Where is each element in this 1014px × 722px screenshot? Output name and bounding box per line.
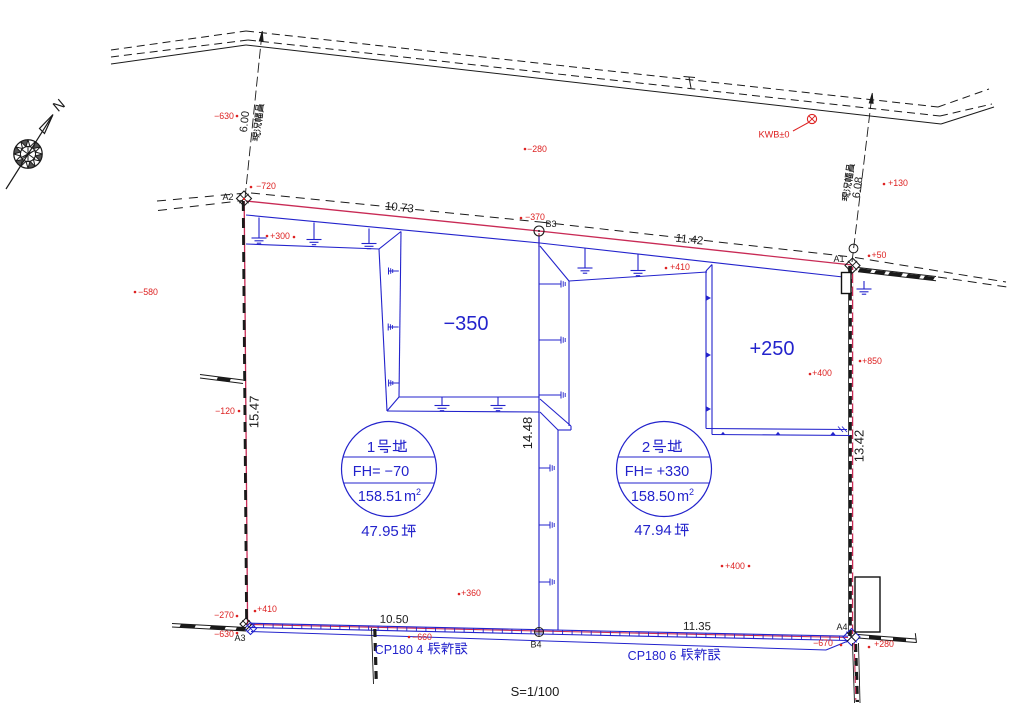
svg-text:2: 2	[642, 439, 650, 456]
svg-text:15.47: 15.47	[246, 396, 262, 429]
svg-text:6.00: 6.00	[238, 110, 252, 133]
svg-text:+50: +50	[872, 250, 887, 260]
svg-text:+850: +850	[862, 356, 882, 366]
svg-text:FH= +330: FH= +330	[625, 464, 690, 480]
svg-text:A4: A4	[836, 622, 847, 632]
svg-text:47.94: 47.94	[634, 522, 672, 539]
svg-text:+300: +300	[270, 231, 290, 241]
svg-text:+400: +400	[725, 561, 745, 571]
svg-text:+360: +360	[461, 588, 481, 598]
svg-text:13.42: 13.42	[852, 430, 867, 463]
svg-text:S=1/100: S=1/100	[511, 684, 560, 699]
svg-text:−120: −120	[215, 406, 235, 416]
svg-text:14.48: 14.48	[520, 417, 535, 450]
svg-text:KWB±0: KWB±0	[758, 130, 789, 140]
svg-text:+130: +130	[888, 178, 908, 188]
svg-text:+280: +280	[874, 639, 894, 649]
svg-text:−660: −660	[412, 632, 432, 642]
svg-text:CP180 6: CP180 6	[628, 649, 677, 663]
svg-text:158.50: 158.50	[631, 489, 675, 505]
svg-text:−370: −370	[525, 212, 545, 222]
svg-text:CP180 4: CP180 4	[375, 643, 424, 657]
svg-text:B4: B4	[530, 640, 541, 650]
svg-text:B3: B3	[545, 219, 556, 229]
svg-text:−270: −270	[214, 610, 234, 620]
svg-text:+410: +410	[257, 604, 277, 614]
svg-text:+400: +400	[812, 368, 832, 378]
svg-text:A2: A2	[222, 192, 233, 202]
svg-text:−280: −280	[527, 144, 547, 154]
svg-text:1: 1	[367, 439, 375, 456]
svg-text:+410: +410	[670, 262, 690, 272]
svg-text:2: 2	[416, 487, 421, 497]
svg-text:11.35: 11.35	[683, 621, 711, 633]
svg-text:−350: −350	[443, 313, 488, 335]
svg-text:m: m	[677, 489, 689, 505]
svg-text:A1: A1	[833, 254, 844, 264]
svg-text:FH= −70: FH= −70	[353, 464, 409, 480]
svg-text:2: 2	[689, 487, 694, 497]
svg-text:−630: −630	[214, 111, 234, 121]
svg-text:+250: +250	[749, 338, 794, 360]
svg-text:A3: A3	[234, 633, 245, 643]
svg-text:158.51: 158.51	[358, 489, 402, 505]
svg-text:m: m	[404, 489, 416, 505]
svg-text:10.50: 10.50	[380, 614, 409, 627]
svg-text:−630: −630	[214, 629, 234, 639]
svg-text:−670: −670	[813, 638, 833, 648]
svg-text:47.95: 47.95	[361, 523, 399, 540]
svg-text:−580: −580	[138, 287, 158, 297]
svg-text:−720: −720	[256, 181, 276, 191]
